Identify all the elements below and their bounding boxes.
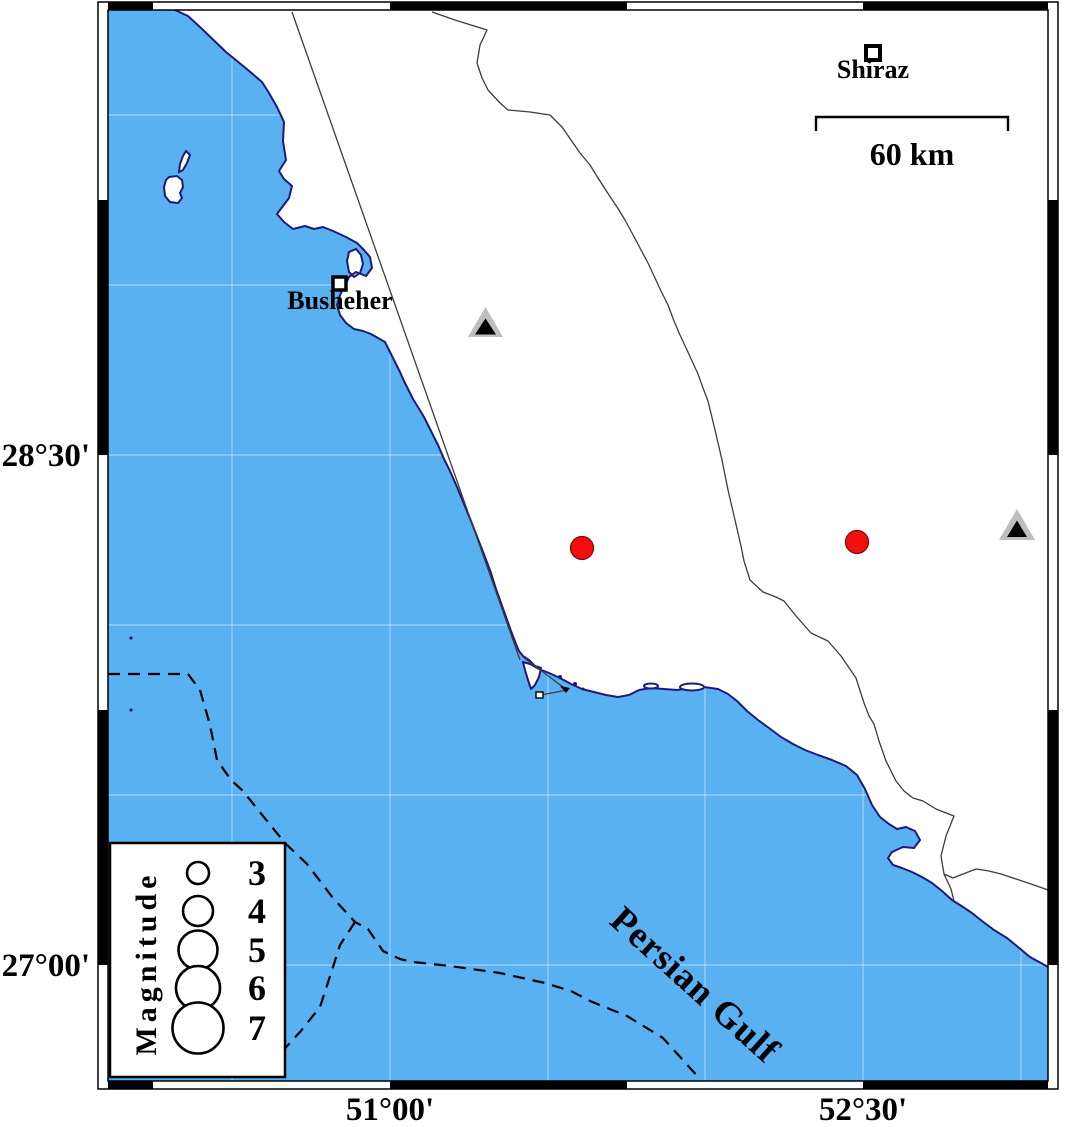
earthquake-epicenter — [571, 537, 594, 560]
legend-circle-m5 — [179, 931, 218, 970]
legend-value-m6: 6 — [248, 968, 266, 1008]
islet-speck — [558, 675, 562, 679]
legend-circle-m4 — [183, 896, 213, 926]
frame-tick — [98, 200, 108, 455]
frame-tick — [1048, 200, 1058, 455]
frame-tick — [863, 1081, 1048, 1089]
axis-label-lat: 27°00' — [2, 948, 90, 984]
axis-label-lon: 52°30' — [819, 1092, 907, 1127]
coastal-islet — [680, 684, 704, 691]
legend-circle-m3 — [187, 862, 209, 884]
coastal-islet — [644, 684, 658, 689]
islet-speck — [582, 688, 585, 691]
seismicity-map: Persian Gulf Magnitude 3 4 5 6 7 — [0, 0, 1066, 1127]
legend-title: Magnitude — [130, 870, 163, 1055]
frame-tick — [390, 2, 627, 10]
legend-circle-m7 — [173, 1003, 224, 1054]
islet-speck — [129, 708, 132, 711]
islet-speck — [573, 682, 577, 686]
frame-tick — [98, 710, 108, 965]
magnitude-legend: Magnitude 3 4 5 6 7 — [110, 843, 285, 1077]
frame-tick — [108, 2, 153, 10]
axis-label-lon: 51°00' — [346, 1092, 434, 1127]
frame-tick — [863, 2, 1048, 10]
frame-tick — [1048, 710, 1058, 965]
scale-bar-label: 60 km — [870, 136, 955, 172]
legend-value-m3: 3 — [248, 853, 266, 893]
city-label-busheher: Busheher — [287, 286, 392, 315]
legend-value-m4: 4 — [248, 891, 266, 931]
frame-tick — [390, 1081, 627, 1089]
tiny-square-marker — [536, 692, 543, 698]
frame-tick — [108, 1081, 153, 1089]
city-label-shiraz: Shiraz — [837, 55, 909, 84]
earthquake-epicenter — [846, 531, 869, 554]
axis-label-lat: 28°30' — [2, 438, 90, 474]
island-kharg — [164, 176, 183, 203]
legend-value-m5: 5 — [248, 930, 266, 970]
legend-value-m7: 7 — [248, 1008, 266, 1048]
islet-speck — [129, 636, 132, 639]
